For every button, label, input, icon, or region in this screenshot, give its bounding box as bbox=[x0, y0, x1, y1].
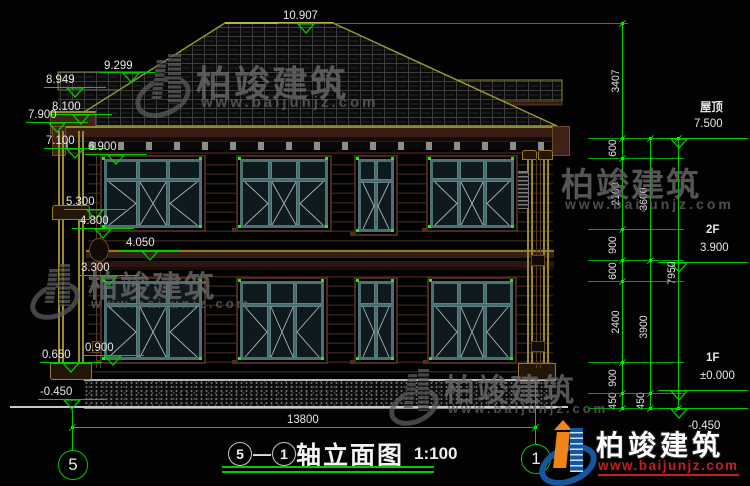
logo-building-blue bbox=[570, 428, 583, 472]
frame-node bbox=[102, 157, 105, 160]
watermark-right-url: www.baijunjz.com bbox=[565, 196, 734, 212]
elevation-triangle-icon bbox=[72, 114, 90, 125]
downspout-clamp bbox=[531, 255, 545, 266]
right-column-line bbox=[547, 158, 549, 377]
frame-node bbox=[510, 357, 513, 360]
frame-node bbox=[428, 225, 431, 228]
extension-line bbox=[588, 229, 684, 230]
left-column-line bbox=[78, 131, 80, 377]
elevation-value: 7.100 bbox=[46, 133, 75, 147]
cornice-endcap-right bbox=[552, 126, 570, 156]
site-logo[interactable]: 柏竣建筑 www.baijunjz.com bbox=[538, 420, 748, 484]
extension-line bbox=[588, 260, 684, 261]
frame-node bbox=[391, 229, 394, 232]
frame-node bbox=[321, 357, 324, 360]
title-axis-bubble-to: 1 bbox=[272, 442, 296, 466]
elevation-triangle-icon bbox=[63, 399, 81, 410]
watermark-url: www.baijunjz.com bbox=[201, 94, 378, 111]
elevation-triangle-icon bbox=[48, 122, 66, 133]
frame-node bbox=[391, 157, 394, 160]
axis-number: 5 bbox=[68, 455, 77, 475]
extension-line bbox=[588, 138, 684, 139]
extension-line bbox=[588, 393, 684, 394]
casement-symbols bbox=[434, 284, 510, 357]
left-column-line bbox=[58, 131, 60, 377]
frame-node bbox=[238, 357, 241, 360]
elevation-value: 0.900 bbox=[85, 340, 114, 354]
dim-value: 600 bbox=[607, 139, 619, 156]
elevation-value: 7.500 bbox=[694, 116, 723, 130]
casement-symbols bbox=[107, 162, 199, 225]
window bbox=[236, 155, 332, 232]
elevation-triangle-icon bbox=[670, 390, 688, 401]
elevation-triangle-icon bbox=[297, 23, 315, 34]
left-column-line bbox=[62, 131, 64, 377]
dentil-row bbox=[62, 141, 562, 150]
dim-value: 3407 bbox=[610, 69, 622, 92]
title-separator: — bbox=[253, 444, 271, 465]
floor-label: 2F bbox=[706, 222, 719, 236]
title-underline bbox=[222, 466, 434, 468]
right-column-capital bbox=[522, 150, 537, 160]
extension-line bbox=[588, 362, 684, 363]
frame-node bbox=[429, 357, 432, 360]
frame-node bbox=[391, 279, 394, 282]
window bbox=[354, 277, 398, 364]
frame-node bbox=[510, 279, 513, 282]
elevation-triangle-icon bbox=[62, 362, 80, 373]
elevation-value: 8.949 bbox=[46, 72, 75, 86]
window bbox=[354, 155, 398, 236]
elevation-value: 4.050 bbox=[126, 235, 155, 249]
watermark-logo-icon bbox=[392, 366, 440, 420]
dim-value: 3900 bbox=[638, 315, 650, 338]
elevation-value: 5.300 bbox=[66, 194, 95, 208]
elevation-value: 0.650 bbox=[42, 347, 71, 361]
frame-node bbox=[238, 225, 241, 228]
extension-line bbox=[336, 23, 628, 24]
elevation-value: ±0.000 bbox=[700, 368, 735, 382]
frame-node bbox=[199, 225, 202, 228]
window bbox=[427, 277, 517, 364]
dim-value: 2400 bbox=[610, 310, 622, 333]
frame-node bbox=[511, 225, 514, 228]
watermark-logo-icon bbox=[33, 262, 83, 314]
casement-symbols bbox=[361, 284, 391, 357]
logo-url-text: www.baijunjz.com bbox=[598, 458, 739, 476]
frame-node bbox=[356, 279, 359, 282]
left-column-line bbox=[82, 131, 84, 377]
downspout-oval-ornament bbox=[89, 238, 109, 262]
watermark-logo-icon bbox=[138, 52, 196, 114]
frame-node bbox=[356, 357, 359, 360]
elevation-triangle-icon bbox=[66, 148, 84, 159]
elevation-value: 6.900 bbox=[88, 139, 117, 153]
title-scale: 1:100 bbox=[414, 444, 457, 464]
frame-node bbox=[356, 229, 359, 232]
frame-node bbox=[428, 157, 431, 160]
watermark-left-url: www.baijunjz.com bbox=[91, 296, 251, 311]
elevation-drawing-canvas: 10.9079.2998.9498.1007.9007.1006.9005.30… bbox=[0, 0, 750, 486]
extension-line bbox=[588, 281, 684, 282]
floor-label: 1F bbox=[706, 350, 719, 364]
frame-node bbox=[238, 279, 241, 282]
casement-symbols bbox=[243, 284, 321, 357]
elevation-value: 4.800 bbox=[80, 213, 109, 227]
axis-bubble-5: 5 bbox=[58, 450, 88, 480]
title-underline bbox=[222, 471, 434, 473]
bottom-dim-line bbox=[72, 427, 535, 428]
dim-value: 900 bbox=[607, 369, 619, 386]
window bbox=[426, 155, 518, 232]
elevation-triangle-icon bbox=[66, 87, 84, 98]
frame-node bbox=[321, 279, 324, 282]
axis-line-1 bbox=[535, 379, 536, 444]
dim-value: 450 bbox=[635, 392, 647, 409]
title-axis-bubble-from: 5 bbox=[228, 442, 252, 466]
elevation-value: 10.907 bbox=[283, 8, 318, 22]
casement-symbols bbox=[243, 162, 325, 225]
elevation-triangle-icon bbox=[107, 154, 125, 165]
watermark-top-url: www.baijunjz.com bbox=[201, 94, 378, 111]
floor-label: 屋顶 bbox=[700, 98, 723, 115]
dim-value: 900 bbox=[607, 236, 619, 253]
axis-line-5 bbox=[72, 410, 73, 450]
frame-node bbox=[199, 357, 202, 360]
window bbox=[236, 277, 328, 364]
window bbox=[100, 155, 206, 232]
casement-symbols bbox=[361, 162, 391, 229]
elevation-triangle-icon bbox=[104, 355, 122, 366]
dim-value: 600 bbox=[607, 262, 619, 279]
dim-value: 450 bbox=[607, 392, 619, 409]
watermark-url: www.baijunjz.com bbox=[91, 296, 251, 311]
downspout-clamp bbox=[531, 341, 545, 352]
frame-node bbox=[325, 225, 328, 228]
frame-node bbox=[199, 157, 202, 160]
frame-node bbox=[391, 357, 394, 360]
watermark-url: www.baijunjz.com bbox=[448, 401, 608, 416]
frame-node bbox=[511, 157, 514, 160]
elevation-triangle-icon bbox=[141, 250, 159, 261]
elevation-triangle-icon bbox=[94, 228, 112, 239]
watermark-bottom-url: www.baijunjz.com bbox=[448, 401, 608, 416]
elevation-value: 3.900 bbox=[700, 240, 729, 254]
bottom-dim-value: 13800 bbox=[287, 412, 319, 426]
elevation-value: 7.900 bbox=[28, 107, 57, 121]
frame-node bbox=[325, 157, 328, 160]
casement-symbols bbox=[433, 162, 511, 225]
frame-node bbox=[356, 157, 359, 160]
elevation-value: -0.450 bbox=[40, 384, 72, 398]
frame-node bbox=[429, 279, 432, 282]
frame-node bbox=[238, 157, 241, 160]
elevation-value: 9.299 bbox=[104, 58, 133, 72]
watermark-url: www.baijunjz.com bbox=[565, 196, 734, 212]
